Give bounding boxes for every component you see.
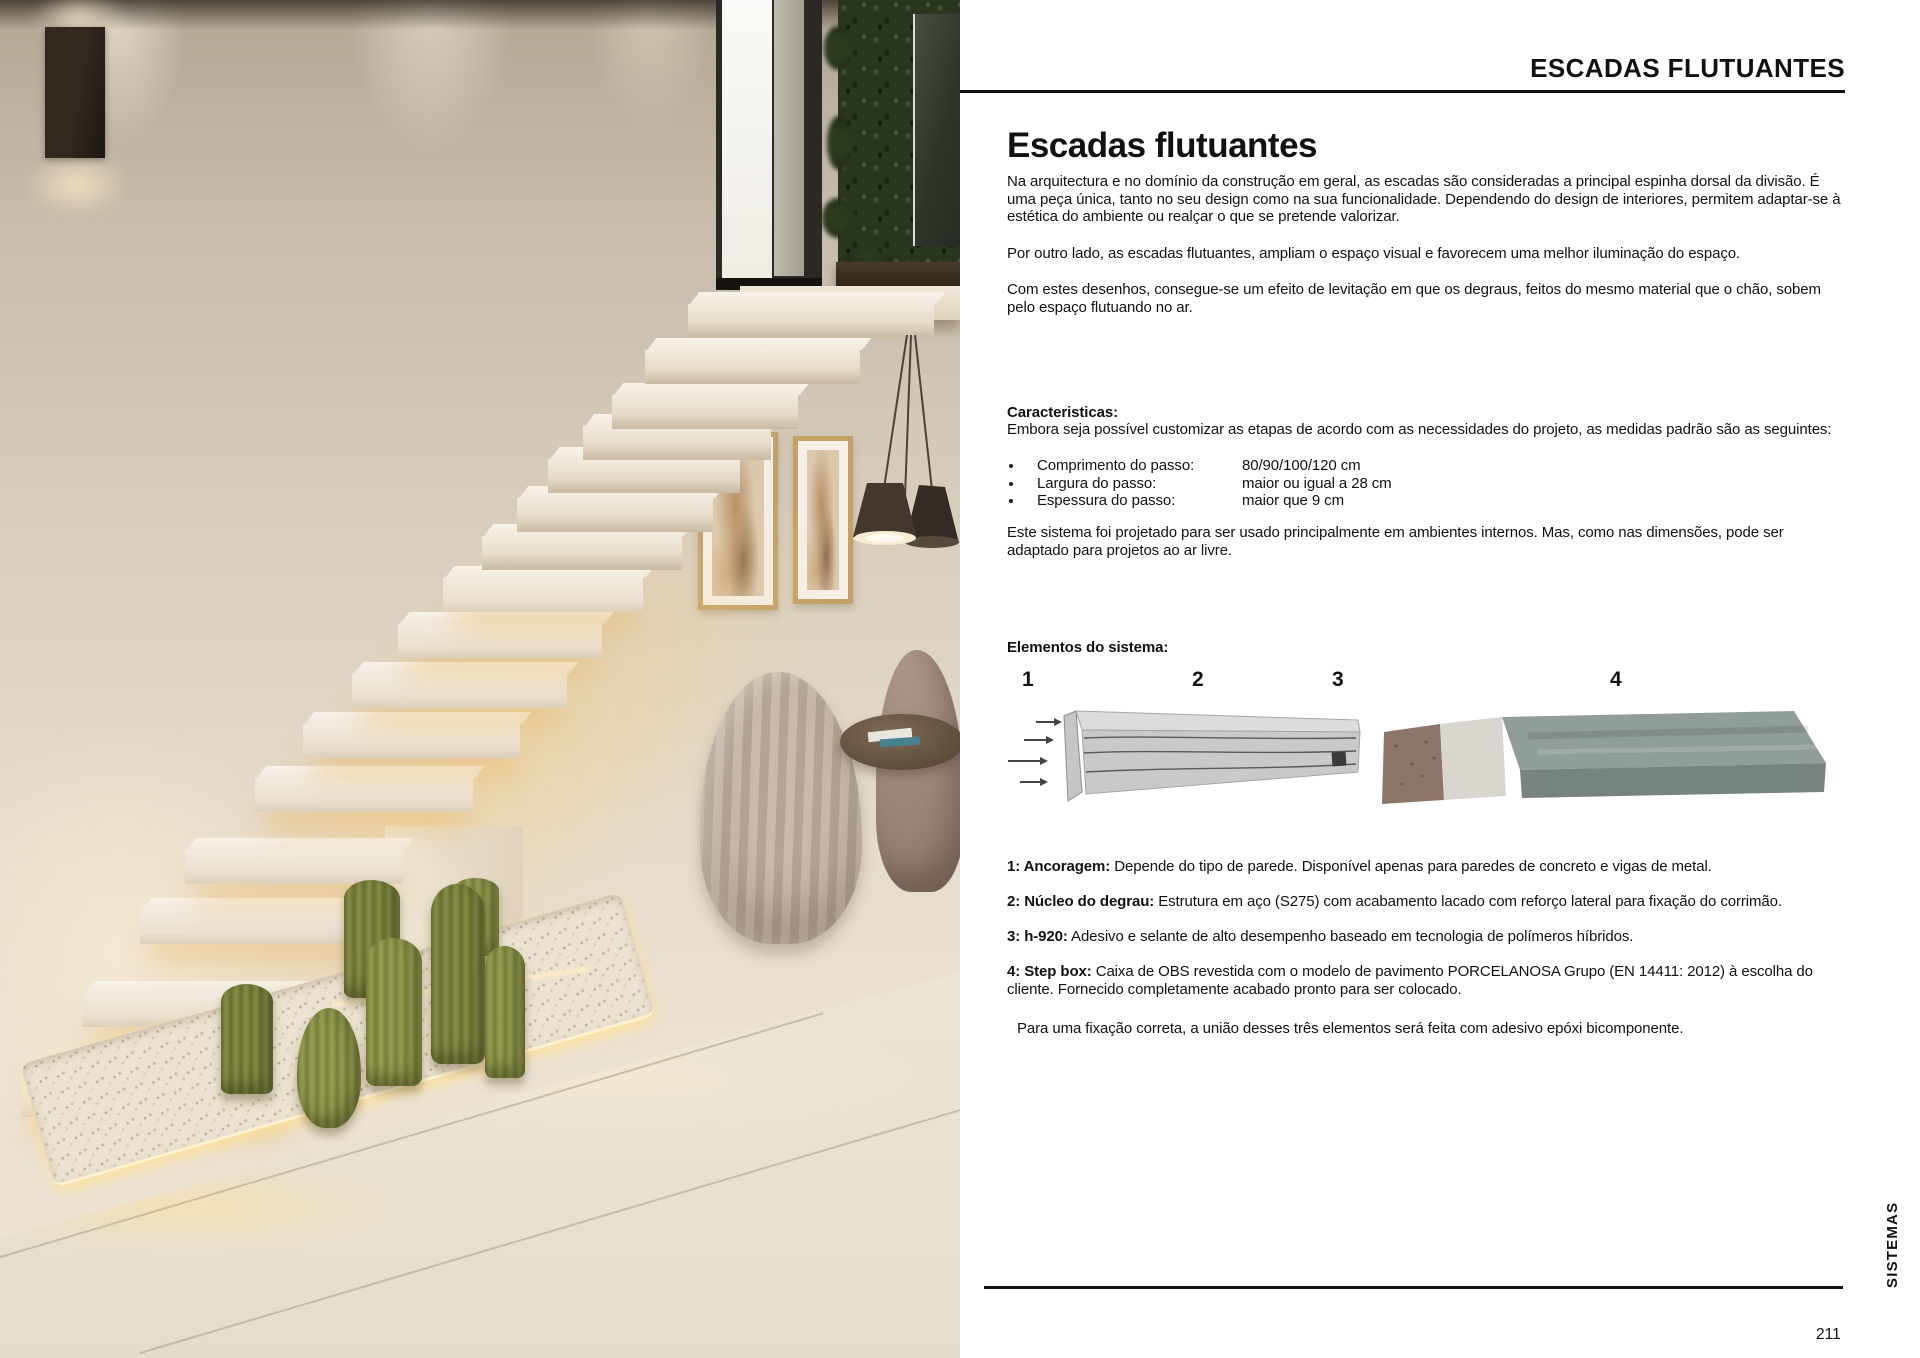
cactus — [485, 946, 525, 1078]
header-rule — [960, 90, 1845, 93]
step-top-face — [400, 612, 613, 624]
step-front-face — [398, 624, 602, 658]
cactus — [297, 1008, 361, 1128]
page-header-title: ESCADAS FLUTUANTES — [1530, 53, 1845, 84]
element-item-label: 3: h-920: — [1007, 928, 1068, 945]
fixation-footnote: Para uma fixação correta, a união desses… — [1017, 1020, 1845, 1038]
step-top-face — [690, 292, 945, 304]
stair-step — [255, 766, 473, 812]
dark-glass-panel — [913, 14, 960, 246]
step-front-face — [517, 498, 713, 532]
paragraph: Por outro lado, as escadas flutuantes, a… — [1007, 245, 1845, 263]
element-item-text: Caixa de OBS revestida com o modelo de p… — [1007, 963, 1813, 998]
stair-step — [398, 612, 602, 658]
step-front-face — [185, 850, 403, 884]
window-glass — [722, 0, 772, 282]
step-top-face — [614, 383, 809, 395]
list-item-value: maior ou igual a 28 cm — [1242, 475, 1392, 493]
anchor-arrows — [1008, 722, 1054, 782]
catalog-page: ESCADAS FLUTUANTES Escadas flutuantes Na… — [0, 0, 1920, 1358]
foliage-cluster — [827, 116, 851, 170]
cactus — [431, 884, 485, 1064]
stair-step — [303, 712, 520, 758]
element-item-label: 2: Núcleo do degrau: — [1007, 893, 1154, 910]
stair-step — [443, 566, 643, 612]
step-core-diagram — [1002, 706, 1374, 814]
list-item-label: Comprimento do passo: — [1037, 457, 1242, 475]
step-front-face — [583, 426, 771, 460]
step-front-face — [303, 724, 520, 758]
armchair-mauve — [876, 650, 960, 892]
wall-sconce — [45, 27, 105, 158]
stair-step — [645, 338, 860, 384]
armchair-gray — [700, 672, 862, 944]
step-top-face — [647, 338, 871, 350]
sidebar-section-label: SISTEMAS — [1884, 1198, 1901, 1288]
step-front-face — [688, 304, 934, 338]
stair-step — [140, 898, 366, 944]
element-item-text: Depende do tipo de parede. Disponível ap… — [1110, 858, 1712, 875]
diagram-marker-3: 3 — [1332, 668, 1344, 692]
list-item: Comprimento do passo: 80/90/100/120 cm — [1007, 457, 1845, 475]
diagram-marker-4: 4 — [1610, 668, 1622, 692]
step-front-face — [352, 674, 567, 708]
element-item: 1: Ancoragem: Depende do tipo de parede.… — [1007, 858, 1845, 876]
window-mullion — [774, 0, 804, 276]
list-item-label: Espessura do passo: — [1037, 492, 1242, 510]
paragraph: Na arquitectura e no domínio da construç… — [1007, 173, 1845, 226]
diagram-marker-2: 2 — [1192, 668, 1204, 692]
planter-band — [836, 262, 960, 288]
step-top-face — [354, 662, 578, 674]
element-item-label: 4: Step box: — [1007, 963, 1092, 980]
characteristics-heading: Caracteristicas: — [1007, 404, 1845, 422]
page-number: 211 — [1816, 1326, 1841, 1344]
step-front-face — [443, 578, 643, 612]
footer-rule — [984, 1286, 1843, 1289]
stair-step — [688, 292, 934, 338]
step-box-diagram — [1378, 706, 1830, 814]
foliage-cluster — [824, 26, 852, 70]
step-top-face — [305, 712, 531, 724]
pendant-lamp — [845, 335, 960, 560]
element-item-label: 1: Ancoragem: — [1007, 858, 1110, 875]
characteristics-list: Comprimento do passo: 80/90/100/120 cm L… — [1007, 457, 1845, 510]
list-item: Espessura do passo: maior que 9 cm — [1007, 492, 1845, 510]
side-table — [840, 714, 960, 770]
list-item-label: Largura do passo: — [1037, 475, 1242, 493]
step-top-face — [142, 898, 377, 910]
step-front-face — [255, 778, 473, 812]
article-title: Escadas flutuantes — [1007, 126, 1317, 166]
characteristics-intro: Embora seja possível customizar as etapa… — [1007, 421, 1845, 439]
hero-photo — [0, 0, 960, 1358]
stair-step — [612, 383, 798, 429]
window-slit — [716, 0, 822, 290]
step-front-face — [140, 910, 366, 944]
elements-heading: Elementos do sistema: — [1007, 639, 1845, 657]
list-item: Largura do passo: maior ou igual a 28 cm — [1007, 475, 1845, 493]
list-item-value: maior que 9 cm — [1242, 492, 1344, 510]
element-item-text: Adesivo e selante de alto desempenho bas… — [1068, 928, 1634, 945]
anchor-arrowheads — [1040, 718, 1062, 786]
step-front-face — [612, 395, 798, 429]
element-item: 4: Step box: Caixa de OBS revestida com … — [1007, 963, 1845, 998]
step-top-face — [187, 838, 414, 850]
step-front-face — [482, 536, 682, 570]
diagram-marker-1: 1 — [1022, 668, 1034, 692]
step-top-face — [257, 766, 484, 778]
element-item: 2: Núcleo do degrau: Estrutura em aço (S… — [1007, 893, 1845, 911]
list-item-value: 80/90/100/120 cm — [1242, 457, 1361, 475]
foliage-cluster — [822, 198, 854, 238]
step-front-face — [645, 350, 860, 384]
step-front-face — [548, 459, 740, 493]
paragraph: Com estes desenhos, consegue-se um efeit… — [1007, 281, 1845, 316]
stair-step — [185, 838, 403, 884]
stair-step — [352, 662, 567, 708]
cactus — [221, 984, 273, 1094]
system-note: Este sistema foi projetado para ser usad… — [1007, 524, 1845, 559]
element-item: 3: h-920: Adesivo e selante de alto dese… — [1007, 928, 1845, 946]
cactus — [366, 938, 422, 1086]
magazine — [880, 737, 920, 748]
element-item-text: Estrutura em aço (S275) com acabamento l… — [1154, 893, 1782, 910]
